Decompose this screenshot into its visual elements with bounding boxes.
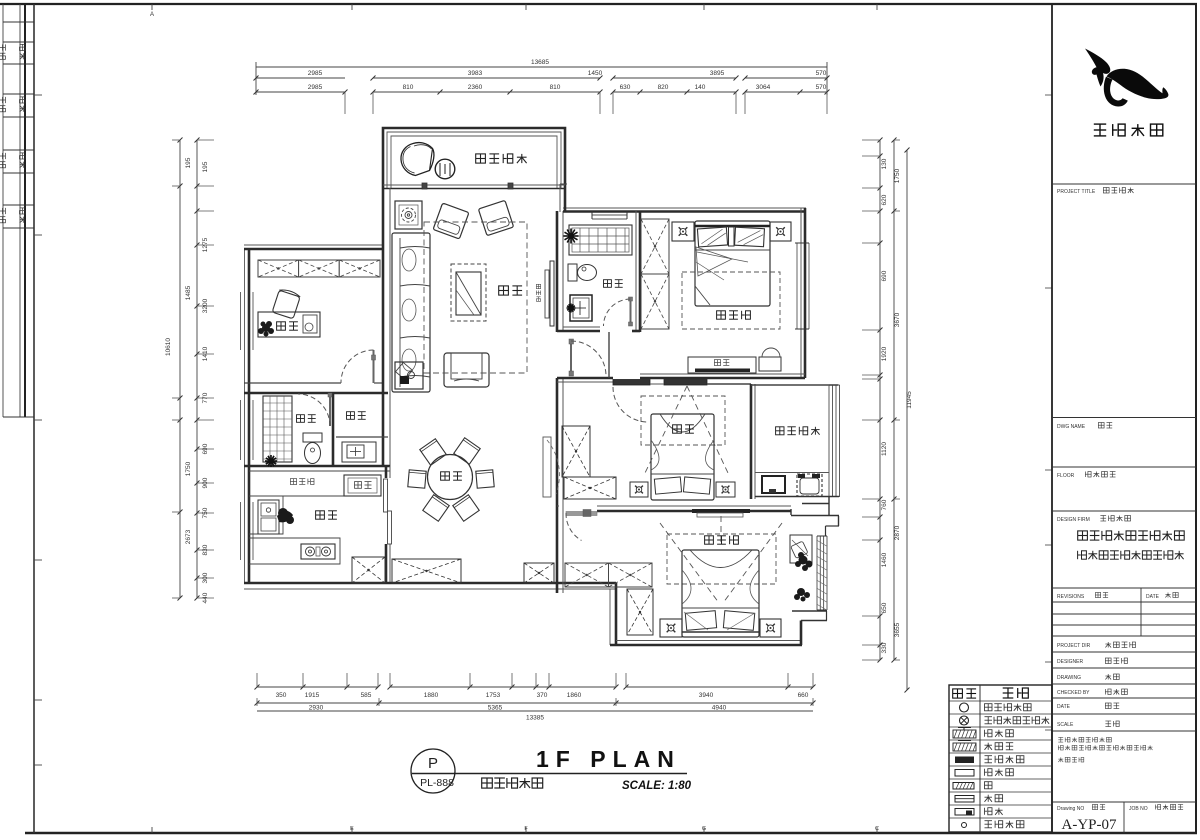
svg-text:690: 690 <box>202 443 209 454</box>
svg-text:3895: 3895 <box>710 70 725 77</box>
svg-text:1410: 1410 <box>202 346 209 361</box>
svg-text:3983: 3983 <box>468 70 483 77</box>
svg-text:PROJECT DIR: PROJECT DIR <box>1057 643 1091 649</box>
svg-text:2985: 2985 <box>308 84 323 91</box>
svg-text:1920: 1920 <box>881 346 888 361</box>
svg-text:1750: 1750 <box>894 168 901 183</box>
svg-text:DESIGNER: DESIGNER <box>1057 659 1084 665</box>
svg-text:FLOOR: FLOOR <box>1057 473 1075 479</box>
svg-text:4940: 4940 <box>712 705 727 712</box>
svg-text:DATE: DATE <box>1057 704 1071 710</box>
svg-text:130: 130 <box>881 158 888 169</box>
svg-text:140: 140 <box>695 84 706 91</box>
svg-text:3064: 3064 <box>756 84 771 91</box>
svg-text:DATE: DATE <box>1146 594 1160 600</box>
svg-text:330: 330 <box>881 642 888 653</box>
svg-text:A: A <box>150 12 154 18</box>
svg-text:PROJECT TITLE: PROJECT TITLE <box>1057 189 1096 195</box>
svg-text:1753: 1753 <box>486 692 501 699</box>
svg-text:E: E <box>350 826 354 832</box>
svg-text:13385: 13385 <box>526 715 544 722</box>
svg-text:JOB NO: JOB NO <box>1129 806 1148 812</box>
svg-text:300: 300 <box>202 572 209 583</box>
svg-text:2870: 2870 <box>894 525 901 540</box>
svg-text:DESIGN FIRM: DESIGN FIRM <box>1057 517 1090 523</box>
svg-text:DRAWING: DRAWING <box>1057 675 1081 681</box>
svg-text:2360: 2360 <box>468 84 483 91</box>
svg-text:Drawing NO: Drawing NO <box>1057 806 1084 812</box>
svg-text:2673: 2673 <box>185 529 192 544</box>
svg-text:1485: 1485 <box>185 285 192 300</box>
svg-text:810: 810 <box>550 84 561 91</box>
svg-text:DWG NAME: DWG NAME <box>1057 424 1086 430</box>
svg-text:1F PLAN: 1F PLAN <box>536 746 681 772</box>
svg-text:900: 900 <box>202 477 209 488</box>
svg-text:690: 690 <box>881 270 888 281</box>
svg-text:810: 810 <box>403 84 414 91</box>
svg-text:3940: 3940 <box>699 692 714 699</box>
svg-text:350: 350 <box>276 692 287 699</box>
svg-text:1915: 1915 <box>305 692 320 699</box>
svg-text:11945: 11945 <box>906 391 913 409</box>
svg-text:2985: 2985 <box>308 70 323 77</box>
svg-text:C: C <box>875 826 879 832</box>
svg-text:1460: 1460 <box>881 552 888 567</box>
svg-text:SCALE: 1:80: SCALE: 1:80 <box>622 780 692 792</box>
svg-text:1275: 1275 <box>202 237 209 252</box>
svg-text:620: 620 <box>881 194 888 205</box>
svg-text:650: 650 <box>881 602 888 613</box>
svg-text:195: 195 <box>202 161 209 172</box>
svg-text:13685: 13685 <box>531 59 549 66</box>
svg-text:10610: 10610 <box>165 338 172 356</box>
svg-text:3655: 3655 <box>894 622 901 637</box>
svg-text:770: 770 <box>202 392 209 403</box>
svg-text:1860: 1860 <box>567 692 582 699</box>
svg-text:760: 760 <box>881 499 888 510</box>
svg-text:1120: 1120 <box>881 442 888 456</box>
svg-text:585: 585 <box>361 692 372 699</box>
svg-text:195: 195 <box>185 157 192 168</box>
svg-text:3200: 3200 <box>202 298 209 313</box>
svg-text:A-YP-07: A-YP-07 <box>1062 817 1117 833</box>
svg-text:750: 750 <box>202 507 209 518</box>
svg-text:440: 440 <box>202 592 209 603</box>
svg-text:370: 370 <box>537 692 548 699</box>
svg-text:570: 570 <box>816 70 827 77</box>
svg-text:G: G <box>702 826 706 832</box>
svg-text:5365: 5365 <box>488 705 503 712</box>
svg-text:1880: 1880 <box>424 692 439 699</box>
svg-text:820: 820 <box>658 84 669 91</box>
svg-text:PL-888: PL-888 <box>420 777 454 789</box>
svg-text:660: 660 <box>798 692 809 699</box>
svg-text:2930: 2930 <box>309 705 324 712</box>
svg-text:3670: 3670 <box>894 312 901 327</box>
svg-text:630: 630 <box>620 84 631 91</box>
svg-text:1450: 1450 <box>588 70 603 77</box>
svg-text:CHECKED BY: CHECKED BY <box>1057 690 1090 696</box>
svg-text:P: P <box>428 755 438 772</box>
svg-text:830: 830 <box>202 544 209 555</box>
svg-text:REVISIONS: REVISIONS <box>1057 594 1085 600</box>
svg-text:1750: 1750 <box>185 461 192 476</box>
svg-text:570: 570 <box>816 84 827 91</box>
svg-text:SCALE: SCALE <box>1057 722 1074 728</box>
